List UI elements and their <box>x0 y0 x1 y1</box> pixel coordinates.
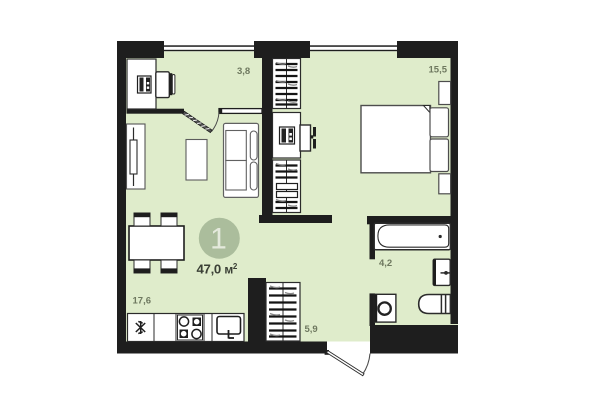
svg-text:3,8: 3,8 <box>237 66 250 77</box>
svg-text:17,6: 17,6 <box>133 295 152 306</box>
svg-text:4,2: 4,2 <box>379 258 392 269</box>
svg-text:5,9: 5,9 <box>305 324 318 335</box>
svg-text:15,5: 15,5 <box>429 64 448 75</box>
svg-text:1: 1 <box>210 222 227 255</box>
svg-text:47,0 м2: 47,0 м2 <box>197 262 238 277</box>
